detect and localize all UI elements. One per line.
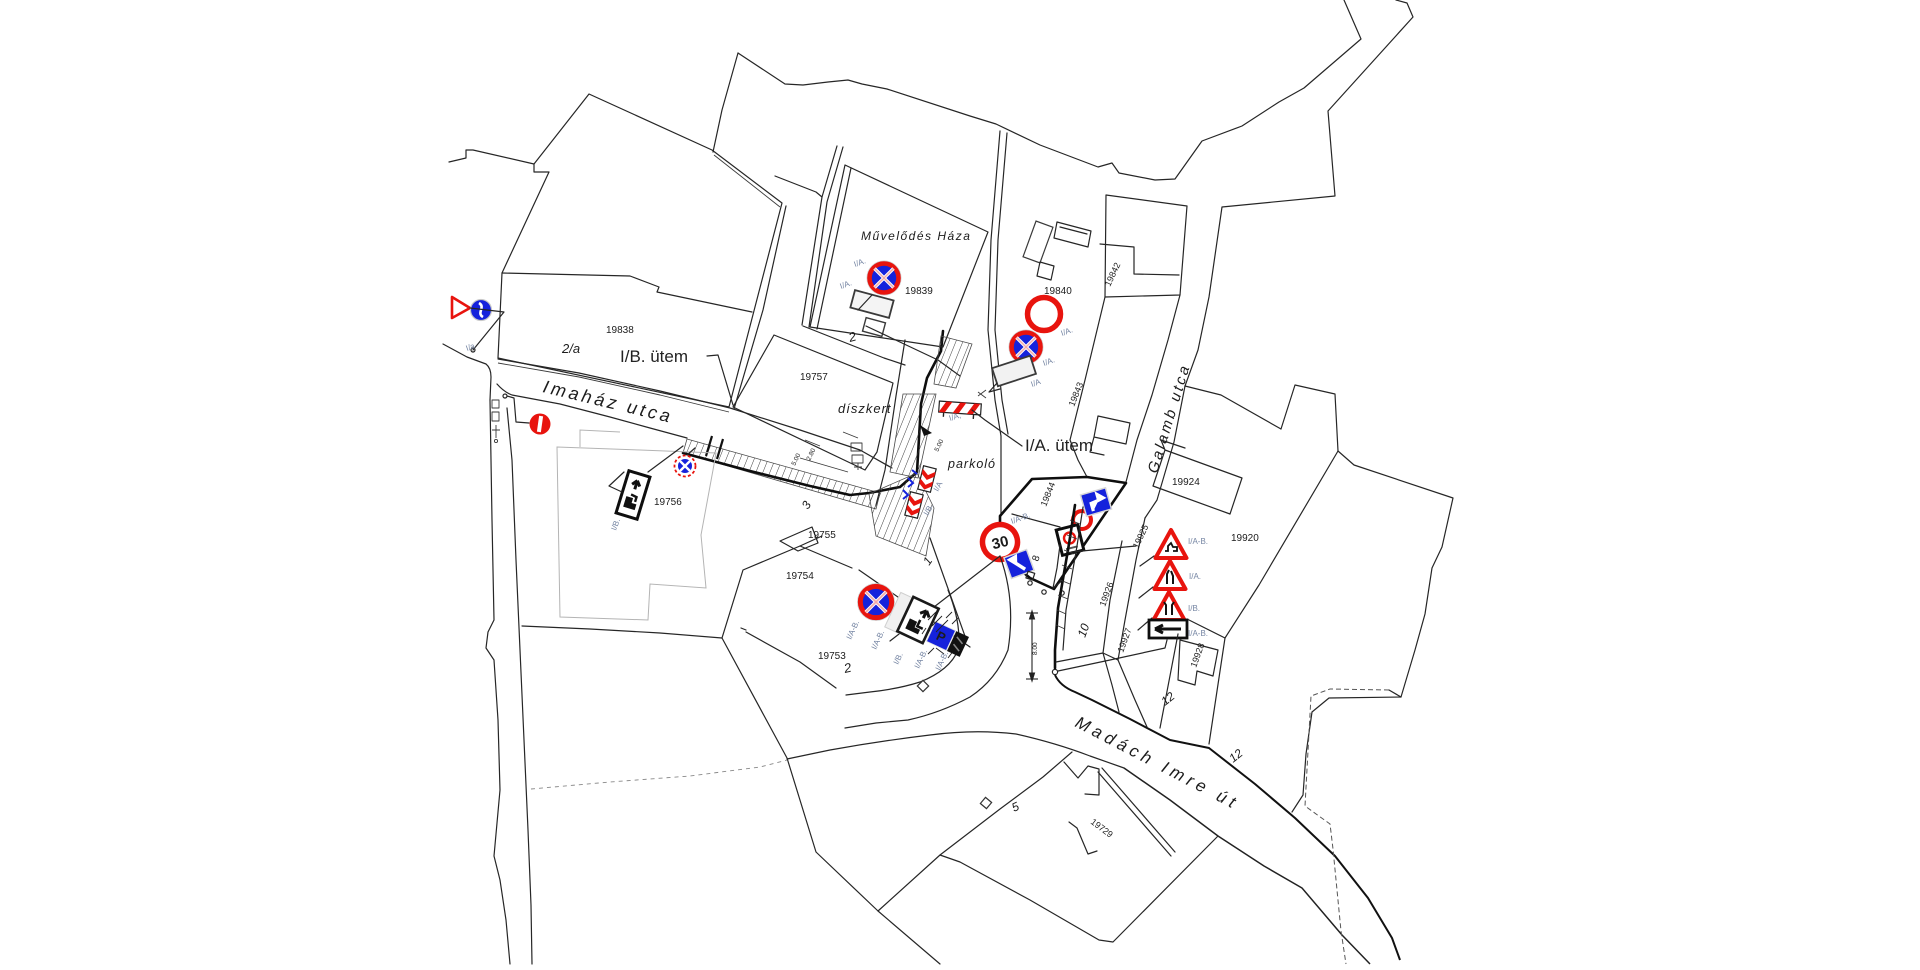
svg-text:I/A.: I/A. bbox=[1189, 572, 1201, 581]
svg-text:2/a: 2/a bbox=[561, 341, 580, 356]
svg-text:19754: 19754 bbox=[786, 571, 814, 582]
svg-text:I/A-B.: I/A-B. bbox=[1188, 629, 1208, 638]
svg-text:Művelődés Háza: Művelődés Háza bbox=[861, 229, 971, 243]
svg-text:8.00: 8.00 bbox=[1032, 642, 1039, 655]
svg-text:19755: 19755 bbox=[808, 530, 836, 541]
svg-text:19757: 19757 bbox=[800, 372, 828, 383]
svg-text:I/A. ütem: I/A. ütem bbox=[1025, 436, 1093, 455]
svg-text:19920: 19920 bbox=[1231, 533, 1259, 544]
svg-text:I/B. ütem: I/B. ütem bbox=[620, 347, 688, 366]
svg-text:19924: 19924 bbox=[1172, 477, 1200, 488]
svg-text:díszkert: díszkert bbox=[838, 401, 892, 416]
svg-text:I/A-B.: I/A-B. bbox=[1188, 537, 1208, 546]
svg-text:19753: 19753 bbox=[818, 651, 846, 662]
svg-text:19839: 19839 bbox=[905, 286, 933, 297]
svg-text:19838: 19838 bbox=[606, 325, 634, 336]
svg-text:I/B.: I/B. bbox=[1188, 604, 1200, 613]
svg-text:parkoló: parkoló bbox=[947, 457, 996, 471]
svg-text:19756: 19756 bbox=[654, 497, 682, 508]
